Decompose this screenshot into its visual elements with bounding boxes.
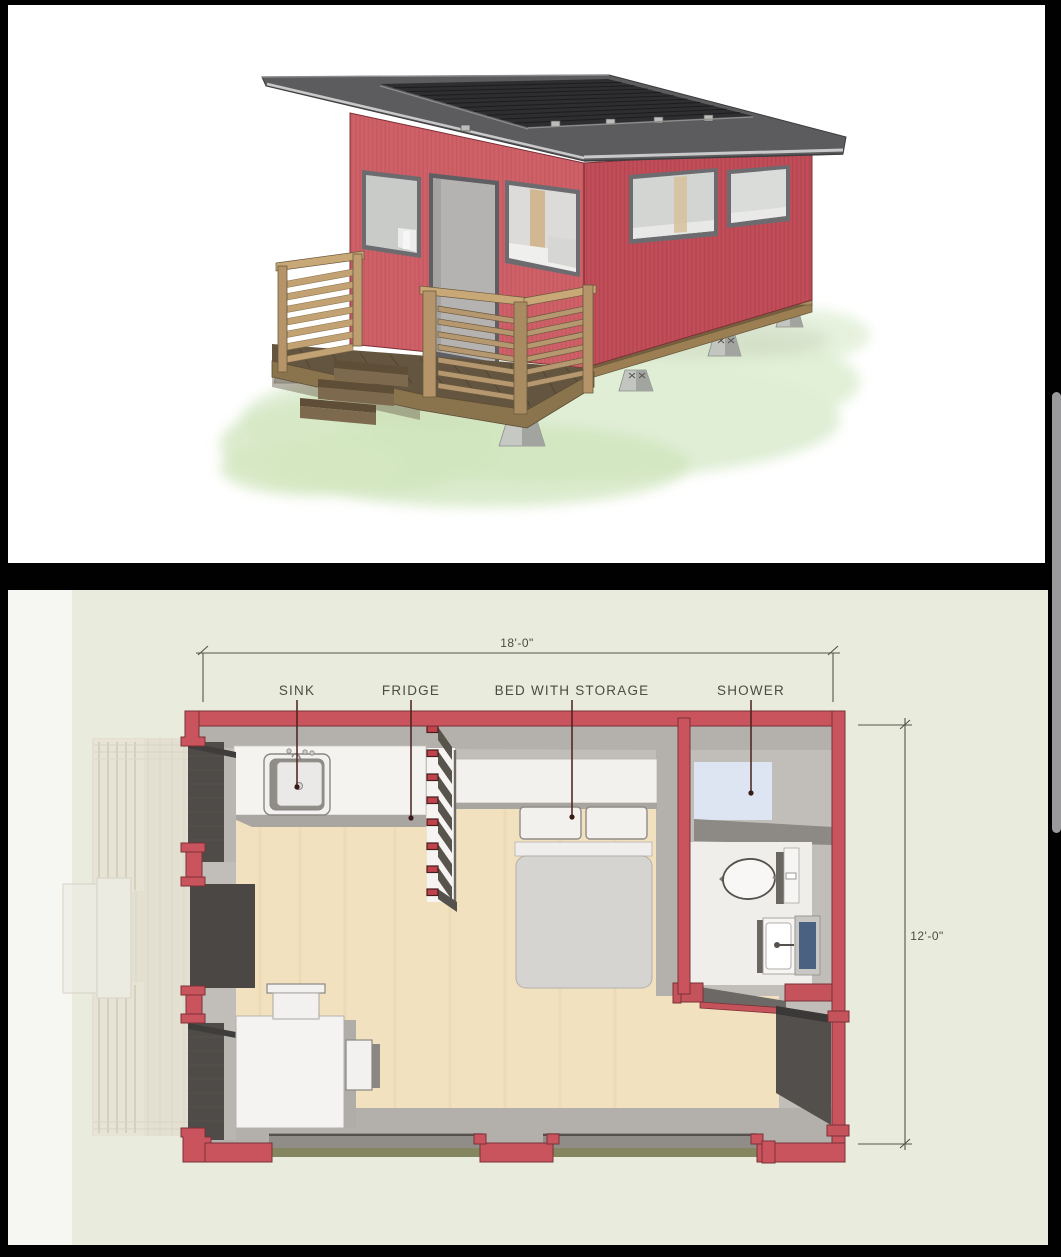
svg-text:FRIDGE: FRIDGE	[382, 683, 440, 698]
svg-text:BED WITH STORAGE: BED WITH STORAGE	[495, 683, 650, 698]
svg-text:SHOWER: SHOWER	[717, 683, 785, 698]
svg-text:18'-0": 18'-0"	[500, 636, 534, 650]
svg-text:12'-0": 12'-0"	[910, 929, 944, 943]
svg-text:SINK: SINK	[279, 683, 315, 698]
